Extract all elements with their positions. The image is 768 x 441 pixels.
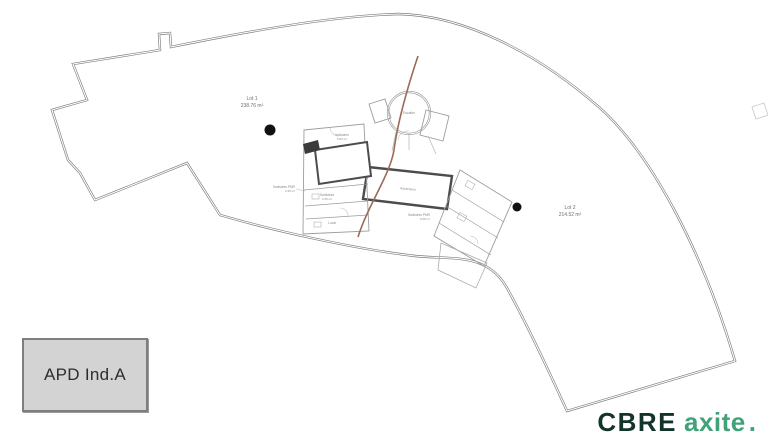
logo-cbre-text: CBRE (597, 409, 677, 435)
svg-text:Lot 2: Lot 2 (564, 205, 575, 211)
lot1-label: Lot 1 238.76 m² (241, 96, 264, 109)
room-label-sanitaires-area: 4.35 m² (322, 197, 332, 201)
building-outline (52, 14, 735, 411)
svg-text:3.35 m²: 3.35 m² (285, 189, 295, 193)
left-cluster-thick-room (315, 142, 371, 184)
stair-circle-block (369, 92, 449, 154)
marker-dot-lot2 (513, 203, 522, 212)
stair-right-room (420, 110, 449, 141)
svg-text:214.52 m²: 214.52 m² (559, 212, 582, 218)
revision-label: APD Ind.A (44, 365, 126, 385)
logo-dot: . (749, 409, 756, 435)
cluster-extension (438, 243, 487, 288)
svg-text:238.76 m²: 238.76 m² (241, 103, 264, 109)
logo-axite-text: axite (684, 409, 746, 435)
elevator-shaft: Ascenseur (363, 167, 452, 209)
page: Escalier Ascenseur Vestiaires 5.80 m² Sa… (0, 0, 768, 441)
detached-element (752, 103, 768, 119)
room-label-vestiaires-area: 5.80 m² (337, 137, 347, 141)
svg-text:Lot 1: Lot 1 (246, 96, 257, 102)
lot2-label: Lot 2 214.52 m² (559, 205, 582, 218)
marker-dot-lot1 (265, 125, 276, 136)
sanitaires-pmr-left-label: Sanitaires PMR 3.35 m² (273, 185, 305, 193)
room-label-escalier: Escalier (403, 111, 416, 115)
room-label-local: Local (328, 221, 336, 225)
svg-text:3.06 m²: 3.06 m² (420, 217, 430, 221)
sanitaires-pmr-right-label: Sanitaires PMR 3.06 m² (408, 213, 431, 221)
revision-title-block: APD Ind.A (22, 338, 148, 412)
cbre-axite-logo: CBREaxite. (597, 409, 756, 435)
